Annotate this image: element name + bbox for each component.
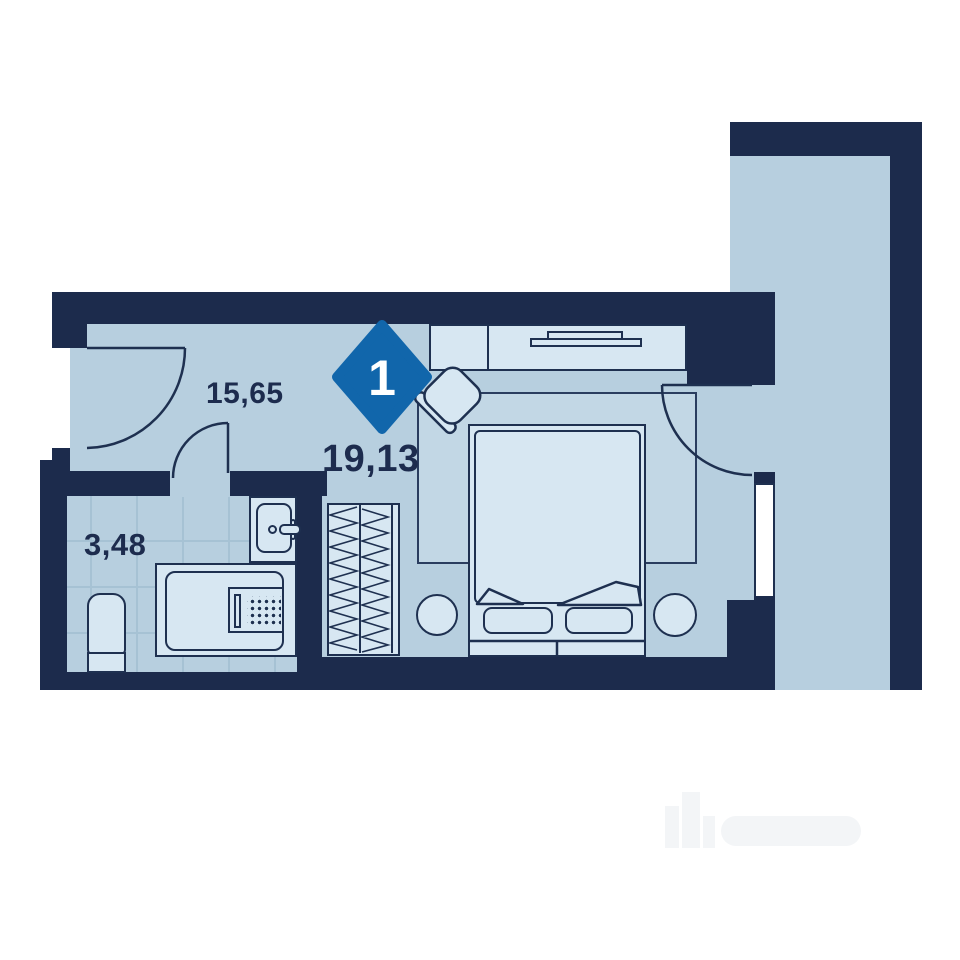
watermark-building-icon [682,792,700,848]
sink-drain [268,525,277,534]
wardrobe-divider [391,505,393,653]
wall-loggia-right [890,122,922,690]
tv-stand [547,331,623,340]
area-label-hall: 15,65 [206,377,284,411]
wardrobe-divider [359,505,361,653]
watermark-text [721,816,861,846]
faucet [279,524,301,535]
appliance-vents [247,596,281,627]
floor-plan: 1 15,65 19,13 3,48 [0,0,960,960]
toilet-tank [87,652,126,673]
console-divider [487,326,489,369]
wall-bottom-main [297,657,775,690]
pillow [483,607,553,634]
area-label-living: 19,13 [322,438,420,481]
toilet-bowl [87,593,126,655]
wardrobe [327,503,400,656]
wall-balcony-upper-block [687,324,775,385]
bedside-table [653,593,697,637]
tile-line [136,496,138,672]
watermark-building-icon [703,816,715,848]
wall-bathroom-wardrobe [297,471,322,672]
watermark [655,790,865,852]
appliance-slot [234,594,241,628]
wall-top-left-corner [52,324,87,348]
bathroom-doorway [170,471,230,497]
window [754,483,775,598]
wall-bathroom-bottom [40,672,322,690]
wall-hall-bathroom-left [40,471,170,496]
wall-top [52,292,775,324]
wall-balcony-lower [727,600,775,690]
area-label-bathroom: 3,48 [84,527,146,563]
watermark-building-icon [665,806,679,848]
mattress [474,430,641,604]
window-jamb-bottom [754,596,775,609]
bedside-table [416,594,458,636]
pillow [565,607,633,634]
